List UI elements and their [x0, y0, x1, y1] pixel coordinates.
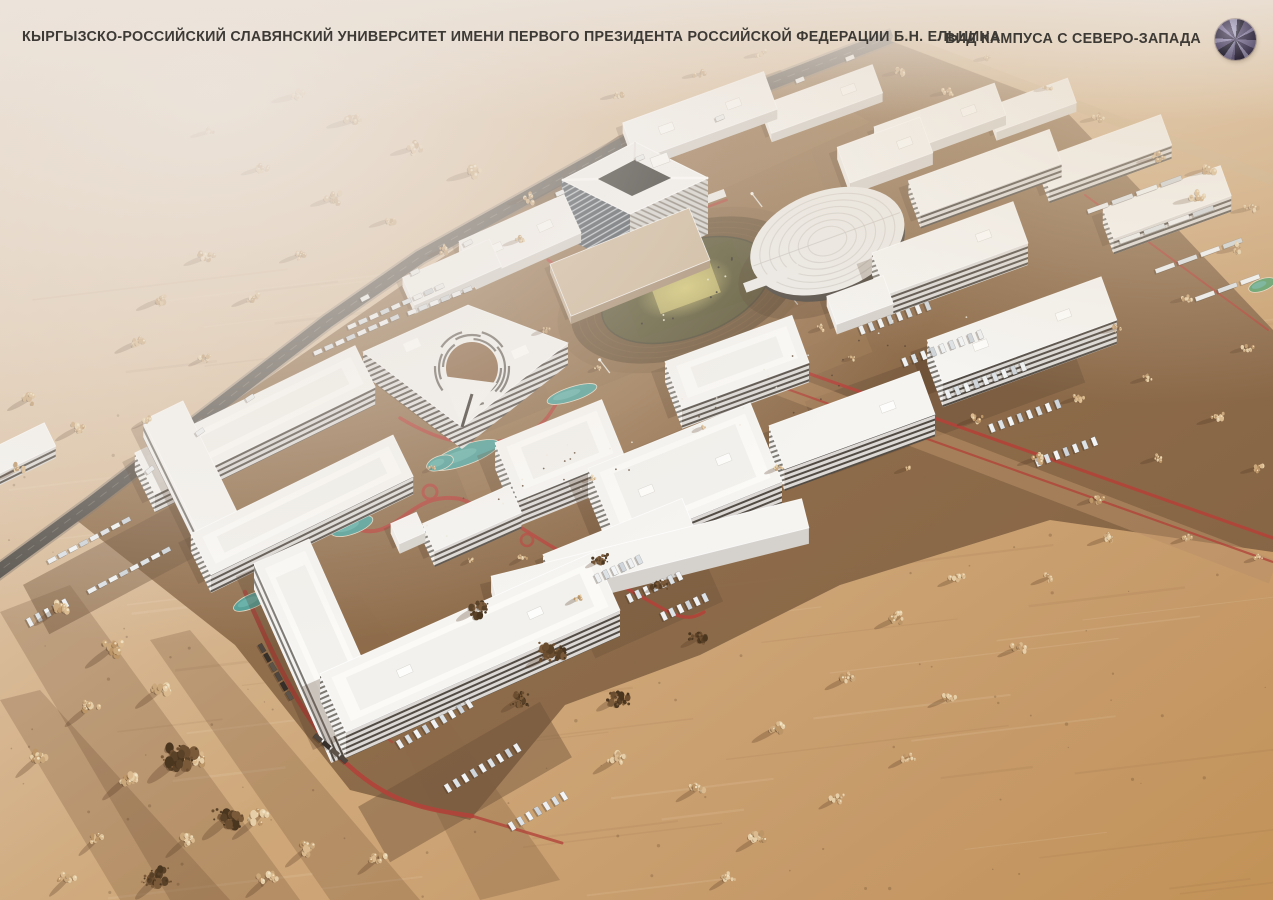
view-label: ВИД КАМПУСА С СЕВЕРО-ЗАПАДА — [945, 31, 1201, 47]
page-title: КЫРГЫЗСКО-РОССИЙСКИЙ СЛАВЯНСКИЙ УНИВЕРСИ… — [22, 29, 1001, 45]
compass-rose-icon — [1215, 19, 1256, 60]
atmospheric-haze — [0, 0, 1273, 900]
campus-rendering: КЫРГЫЗСКО-РОССИЙСКИЙ СЛАВЯНСКИЙ УНИВЕРСИ… — [0, 0, 1273, 900]
campus-scene-svg — [0, 0, 1273, 900]
